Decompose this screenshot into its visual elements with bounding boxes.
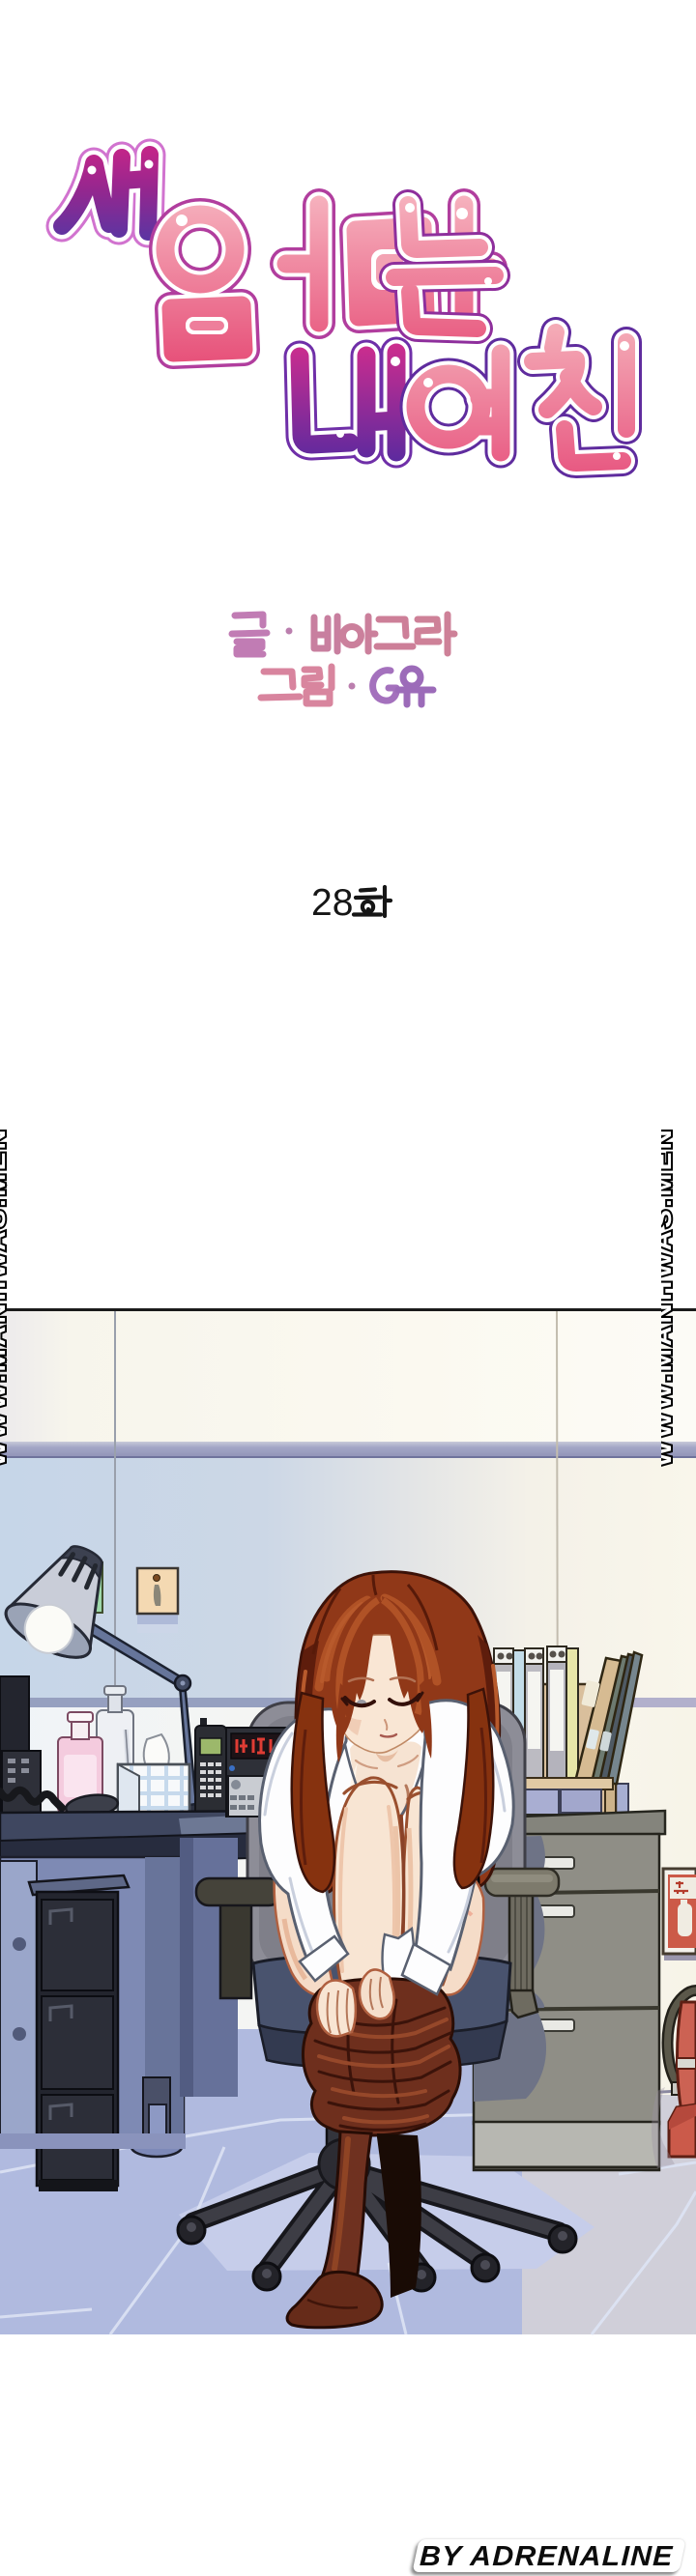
svg-text:WWW.MANHWAS.MEN: WWW.MANHWAS.MEN: [661, 1127, 677, 1467]
svg-text:28: 28: [311, 882, 353, 924]
svg-text:WWW.MANHWAS.MEN: WWW.MANHWAS.MEN: [0, 1127, 11, 1467]
